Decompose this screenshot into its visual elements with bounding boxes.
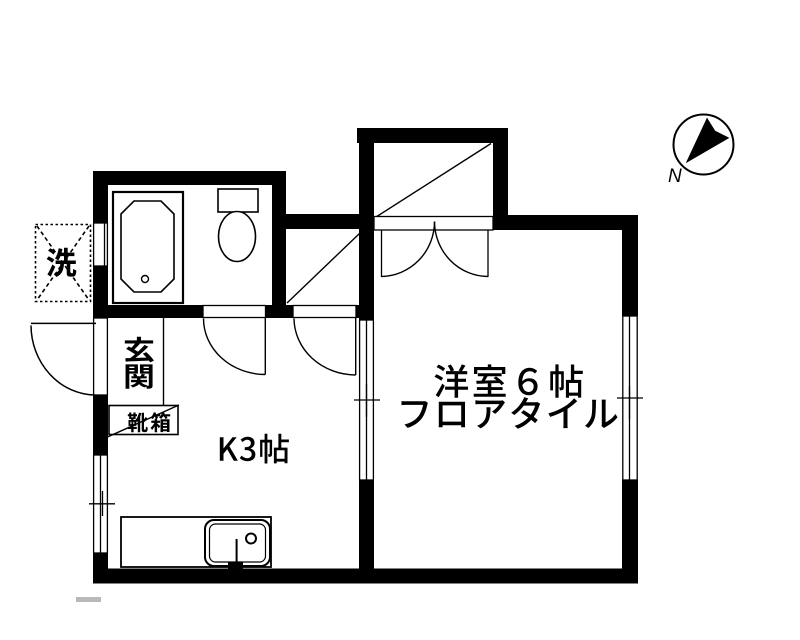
svg-text:N: N xyxy=(668,166,682,187)
